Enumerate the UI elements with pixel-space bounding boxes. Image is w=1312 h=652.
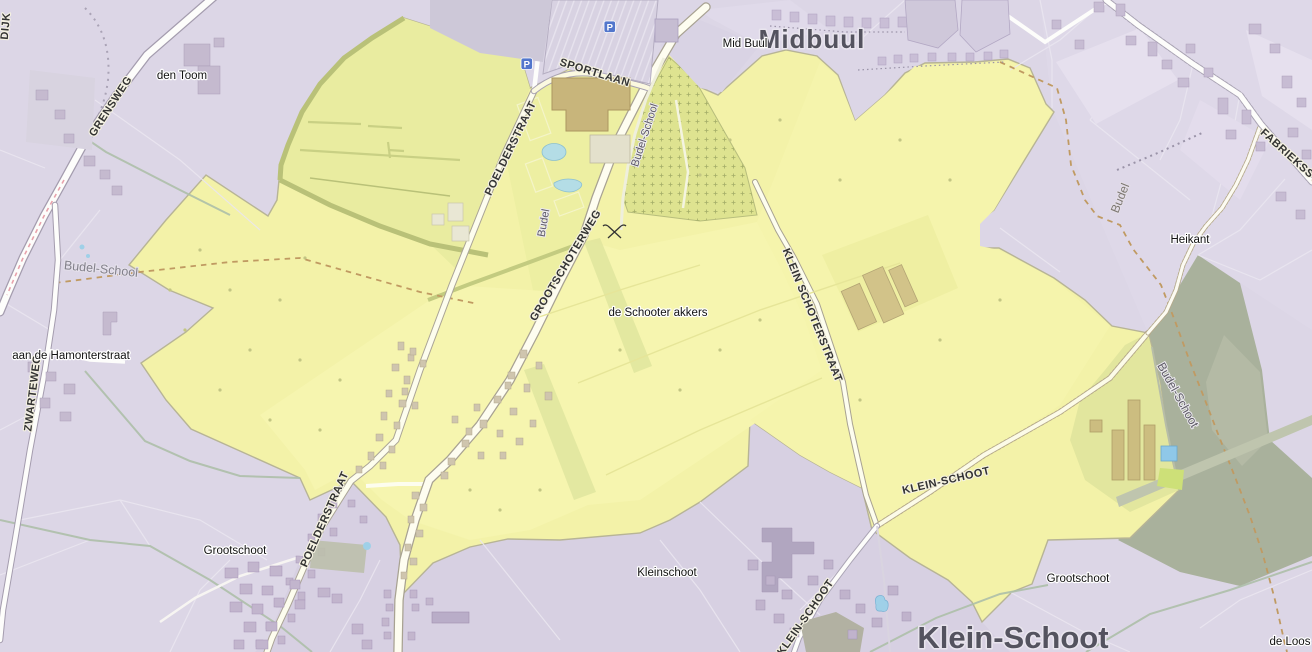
svg-text:P: P bbox=[524, 60, 531, 71]
svg-text:Klein-Schoot: Klein-Schoot bbox=[917, 620, 1108, 652]
svg-text:Grootschoot: Grootschoot bbox=[1047, 573, 1110, 585]
svg-text:de Schooter akkers: de Schooter akkers bbox=[608, 307, 707, 319]
svg-text:aan de Hamonterstraat: aan de Hamonterstraat bbox=[12, 350, 130, 362]
svg-text:Mid Buul: Mid Buul bbox=[723, 38, 768, 50]
svg-text:Heikant: Heikant bbox=[1171, 234, 1211, 246]
svg-text:de Loos: de Loos bbox=[1270, 636, 1311, 648]
svg-text:Kleinschoot: Kleinschoot bbox=[637, 567, 697, 579]
svg-text:Grootschoot: Grootschoot bbox=[204, 545, 267, 557]
svg-text:den Toom: den Toom bbox=[157, 70, 207, 82]
svg-text:Midbuul: Midbuul bbox=[759, 24, 866, 54]
svg-text:P: P bbox=[607, 23, 614, 34]
